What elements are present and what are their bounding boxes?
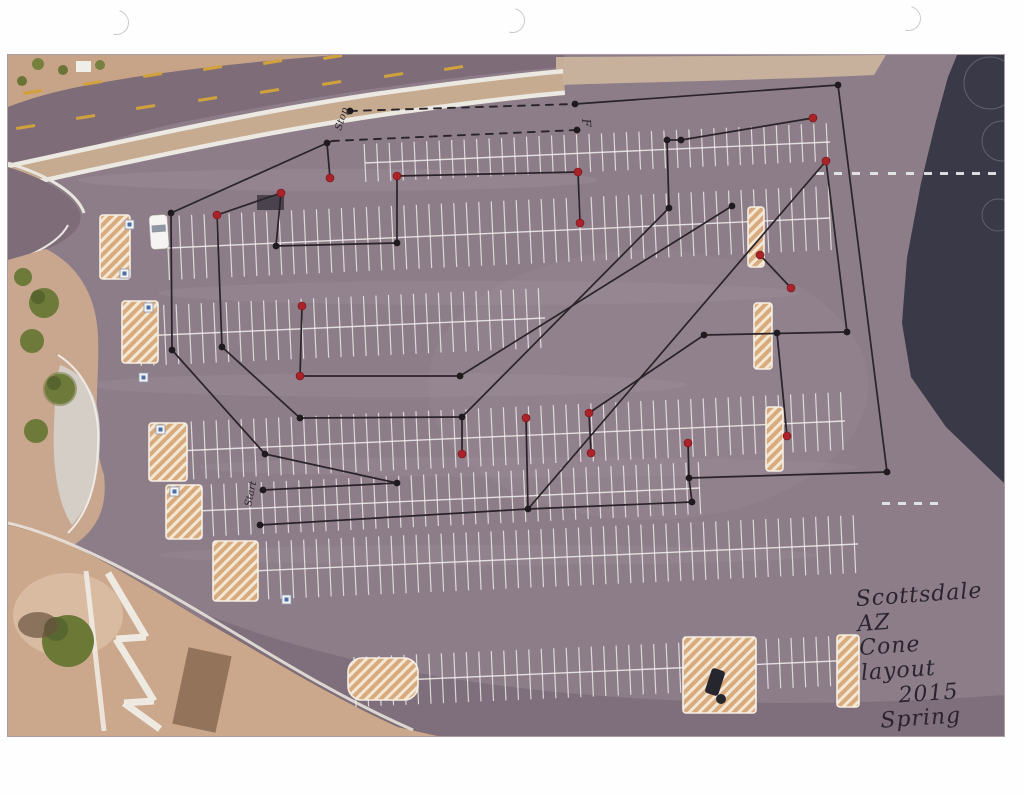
black-cone [574, 127, 581, 134]
red-cone [213, 211, 221, 219]
black-cone [168, 210, 175, 217]
scanned-page: StopFStart Scottsdale AZ Cone layout 201… [0, 0, 1024, 794]
hatched-island [766, 407, 783, 471]
punch-hole [99, 5, 133, 39]
course-line [300, 417, 462, 418]
black-cone [169, 347, 176, 354]
black-cone [394, 480, 401, 487]
black-cone [525, 506, 532, 513]
red-cone [393, 172, 401, 180]
punch-hole [891, 1, 925, 35]
lane-dash [888, 172, 896, 175]
black-cone [257, 522, 264, 529]
black-cone [324, 140, 331, 147]
red-cone [585, 409, 593, 417]
hatched-island [149, 423, 187, 481]
black-cone [835, 82, 842, 89]
red-cone [522, 414, 530, 422]
red-cone [787, 284, 795, 292]
red-cone [574, 168, 582, 176]
lane-dash [924, 172, 932, 175]
black-cone [678, 137, 685, 144]
hatched-island [348, 658, 418, 700]
aerial-photo-svg: StopFStart [8, 55, 1004, 736]
red-cone [277, 189, 285, 197]
handicap-glyph [128, 223, 132, 227]
lane-dash [930, 502, 938, 505]
black-cone [689, 499, 696, 506]
hatched-island [837, 635, 859, 707]
lane-dash [940, 172, 948, 175]
black-cone [394, 240, 401, 247]
red-cone [576, 219, 584, 227]
course-line [171, 213, 172, 350]
red-cone [587, 449, 595, 457]
handicap-glyph [142, 376, 146, 380]
aerial-photo: StopFStart Scottsdale AZ Cone layout 201… [8, 55, 1004, 736]
lane-dash [870, 172, 878, 175]
black-cone [219, 344, 226, 351]
white-car [149, 214, 169, 249]
lane-dash [972, 172, 980, 175]
hatched-island [213, 541, 258, 601]
black-cone [844, 329, 851, 336]
punch-hole [495, 3, 529, 37]
black-cone [459, 414, 466, 421]
lane-dash [956, 172, 964, 175]
black-cone [260, 487, 267, 494]
black-cone [262, 451, 269, 458]
black-cone [884, 469, 891, 476]
lane-dash [898, 502, 906, 505]
black-cone [457, 373, 464, 380]
red-cone [783, 432, 791, 440]
lane-dash [852, 172, 860, 175]
lane-dash [882, 502, 890, 505]
black-cone [664, 137, 671, 144]
lane-dash [988, 172, 996, 175]
handicap-glyph [147, 306, 151, 310]
red-cone [298, 302, 306, 310]
lane-dash [914, 502, 922, 505]
black-cone [273, 243, 280, 250]
black-cone [666, 205, 673, 212]
lane-dash [906, 172, 914, 175]
red-cone [458, 450, 466, 458]
black-cone [297, 415, 304, 422]
handicap-glyph [123, 272, 127, 276]
black-cone [729, 203, 736, 210]
handicap-glyph [285, 598, 289, 602]
hatched-island [754, 303, 772, 369]
red-cone [684, 439, 692, 447]
red-cone [326, 174, 334, 182]
black-cone [701, 332, 708, 339]
lane-dash [834, 172, 842, 175]
black-cone [774, 330, 781, 337]
black-cone [572, 101, 579, 108]
course-line [688, 443, 689, 478]
red-cone [296, 372, 304, 380]
red-cone [822, 157, 830, 165]
handicap-glyph [173, 490, 177, 494]
utility-box [76, 61, 91, 72]
red-cone [809, 114, 817, 122]
handwritten-title: Scottsdale AZ Cone layout 2015 Spring [855, 578, 1004, 735]
handicap-glyph [159, 428, 163, 432]
black-cone [686, 475, 693, 482]
red-cone [756, 251, 764, 259]
